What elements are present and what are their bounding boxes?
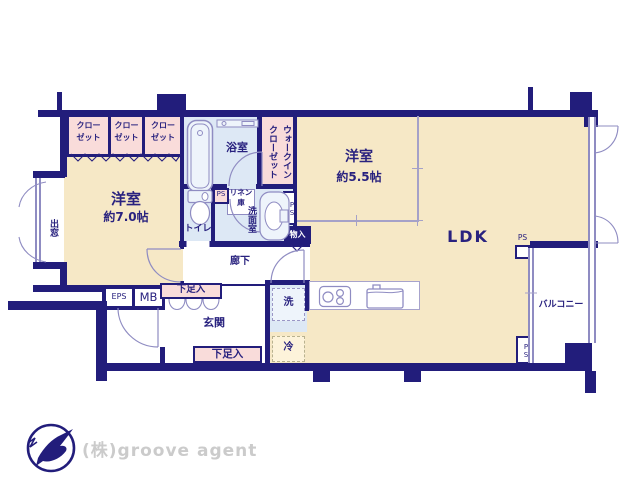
label-closet1-line1: クロー [69,122,108,131]
label-washer: 洗 [272,297,305,308]
wall-top [38,110,598,117]
label-hallway: 廊下 [221,256,259,267]
shoe-rack-scallops [167,298,223,316]
wall-left-upper [60,110,67,177]
label-balcony: バルコニー [532,300,590,310]
label-ldk: LDK [443,228,493,246]
label-storage-box: 物入 [284,231,311,240]
wall-entrance-left-lower [160,347,165,363]
label-shoe-upper: 下足入 [160,285,222,296]
label-western55-name: 洋室 [328,150,390,166]
company-logo-icon [23,422,79,476]
label-toilet: トイレ [182,224,214,234]
balcony-right-rail [588,243,596,343]
label-western7-name: 洋室 [88,191,164,208]
wall-balcony-corner [565,343,592,371]
label-eps: EPS [106,293,132,302]
label-mb: MB [135,291,162,304]
label-closet3-line1: クロー [145,122,181,131]
label-ps-balcony: PS [518,340,529,361]
bay-casement-arc-top [17,181,48,208]
stove-icon [318,285,352,308]
label-ps-washroom: PS [284,196,295,222]
label-western7-size: 約7.0帖 [88,211,164,224]
wall-bottom [96,363,567,371]
label-washroom: 洗面室 [242,197,255,241]
hallway-ldk-door-arc [270,249,305,284]
bathtub-icon [186,119,214,193]
label-shoe-lower: 下足入 [193,349,262,361]
right-door-arc-top [593,125,620,154]
entrance-door-arc [117,307,159,348]
label-closet2-line1: クロー [111,122,142,131]
right-door-arc-bottom [593,215,620,244]
label-closet3-line2: ゼット [145,134,181,143]
balcony-window-tick [525,288,537,298]
wall-top-pillar-1 [157,94,186,110]
wall-top-stub-2 [528,87,533,110]
wall-bottom-right-tail [585,371,596,393]
toilet-door [186,241,210,247]
wall-west7-bottom-foot [33,285,63,292]
bay-window-top [33,171,65,178]
wall-entrance-right [265,284,270,363]
label-ps-ldk: PS [509,234,536,242]
label-entrance: 玄関 [194,317,234,329]
west7-door-arc [146,248,182,283]
closet-hanger-zigzag [70,153,182,162]
label-closet1-line2: ゼット [69,134,108,143]
company-name: (株)groove agent [82,436,322,461]
floor-plan: 洋室 約7.0帖 クロー ゼット クロー ゼット クロー ゼット 浴室 ウォーク… [0,0,640,480]
label-closet2-line2: ゼット [111,134,142,143]
label-western55-size: 約5.5帖 [328,171,390,184]
toilet-icon [186,189,214,227]
kitchen-sink-icon [365,283,405,310]
wall-bottom-tab-2 [404,371,421,382]
wall-top-stub-1 [57,92,62,110]
partition-tick-3 [351,215,362,226]
label-fridge: 冷 [272,342,305,353]
label-bay-window: 出窓 [43,206,57,250]
label-bath: 浴室 [217,142,257,154]
label-wic-line2: クローゼット [264,120,276,184]
wall-bottom-tab-1 [313,371,330,382]
label-wic-line1: ウォークイン [278,120,290,184]
wall-corridor-horizontal [8,301,102,310]
bath-door-arc [228,151,263,187]
partition-tick-2 [412,215,423,226]
wall-top-pillar-2 [570,92,592,110]
entrance-step-line [222,284,265,286]
partition-tick-1 [412,163,423,174]
bath-counter-icon [216,118,260,129]
